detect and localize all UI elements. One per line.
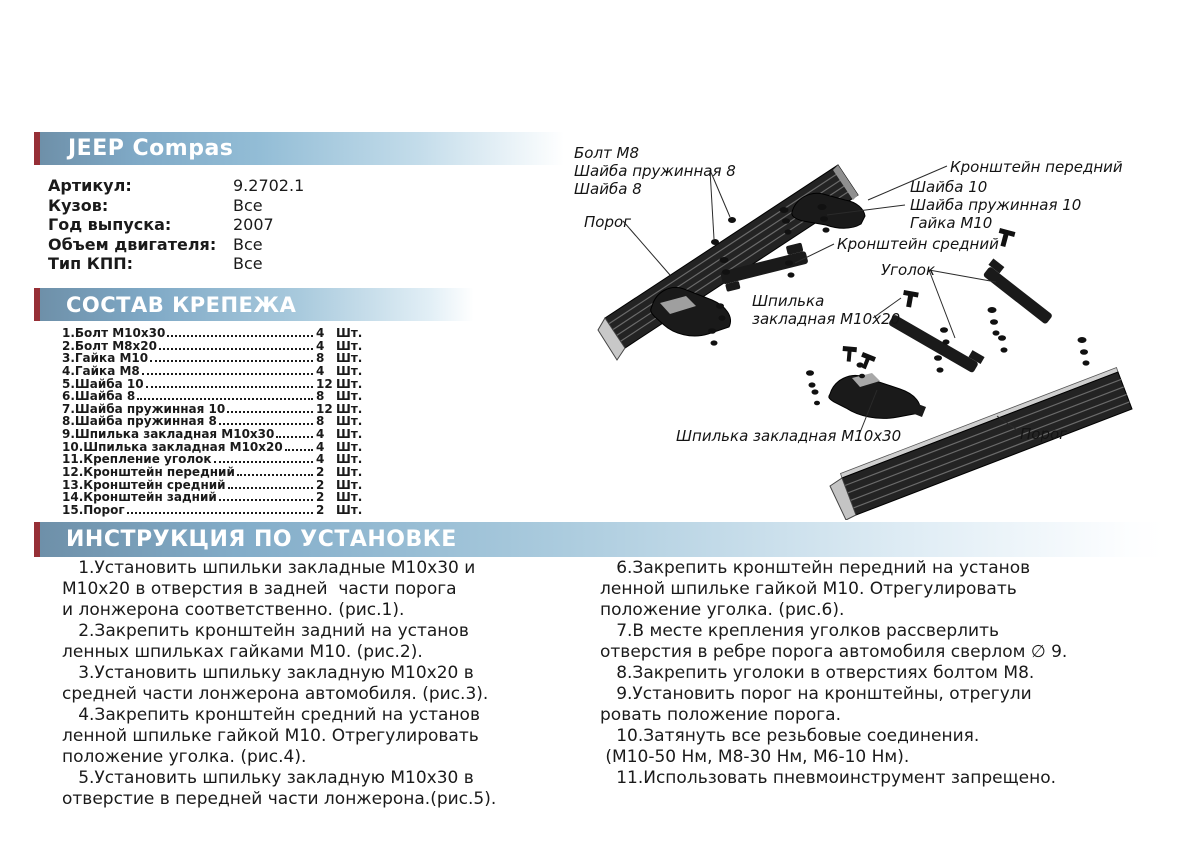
- instructions-header-band: ИНСТРУКЦИЯ ПО УСТАНОВКЕ: [34, 522, 1166, 557]
- dot-leader: [285, 449, 313, 451]
- dot-leader: [219, 423, 313, 425]
- instruction-line: средней части лонжерона автомобиля. (рис…: [62, 684, 572, 705]
- parts-list-row: 10.Шпилька закладная М10х20 4 Шт.: [62, 440, 362, 453]
- dot-leader: [214, 461, 313, 463]
- parts-list-row: 6.Шайба 8 8 Шт.: [62, 389, 362, 402]
- spec-label: Объем двигателя:: [48, 235, 233, 254]
- spec-row: Кузов: Все: [48, 196, 378, 216]
- diagram-label-sill-left: Порог: [584, 213, 631, 231]
- parts-list: 1.Болт М10х30 4 Шт. 2.Болт М8х20 4 Шт. 3…: [62, 326, 362, 516]
- instruction-line: 8.Закрепить уголоки в отверстиях болтом …: [600, 663, 1160, 684]
- parts-list-row: 11.Крепление уголок 4 Шт.: [62, 452, 362, 465]
- part-name: 15.Порог: [62, 503, 125, 517]
- instruction-line: ровать положение порога.: [600, 705, 1160, 726]
- instruction-line: 3.Установить шпильку закладную М10х20 в: [62, 663, 572, 684]
- spec-label: Год выпуска:: [48, 215, 233, 234]
- parts-list-row: 7.Шайба пружинная 10 12 Шт.: [62, 402, 362, 415]
- spec-value: 2007: [233, 215, 274, 234]
- parts-list-row: 2.Болт М8х20 4 Шт.: [62, 339, 362, 352]
- parts-list-row: 3.Гайка М10 8 Шт.: [62, 351, 362, 364]
- spec-table: Артикул: 9.2702.1 Кузов: Все Год выпуска…: [48, 176, 378, 274]
- parts-list-row: 5.Шайба 10 12 Шт.: [62, 377, 362, 390]
- instruction-line: 10.Затянуть все резьбовые соединения.: [600, 726, 1160, 747]
- bracket-rear-shape: [651, 288, 731, 336]
- instruction-line: 1.Установить шпильки закладные М10х30 и: [62, 558, 572, 579]
- spec-row: Год выпуска: 2007: [48, 215, 378, 235]
- instruction-line: положение уголка. (рис.4).: [62, 747, 572, 768]
- dot-leader: [159, 348, 313, 350]
- diagram-label-stud-line1: Шпилька: [752, 292, 824, 310]
- diagram-label-bolt-m8: Болт М8: [574, 144, 639, 162]
- instruction-line: 5.Установить шпильку закладную М10х30 в: [62, 768, 572, 789]
- instruction-sheet: JEEP Compas Артикул: 9.2702.1 Кузов: Все…: [0, 0, 1200, 848]
- dot-leader: [150, 360, 313, 362]
- instruction-line: 6.Закрепить кронштейн передний на устано…: [600, 558, 1160, 579]
- instructions-header: ИНСТРУКЦИЯ ПО УСТАНОВКЕ: [40, 527, 457, 552]
- spec-label: Кузов:: [48, 196, 233, 215]
- diagram-label-stud-line2: закладная М10х20: [752, 310, 900, 328]
- instruction-line: ленных шпильках гайками М10. (рис.2).: [62, 642, 572, 663]
- diagram-label-washer-8: Шайба 8: [574, 180, 642, 198]
- dot-leader: [142, 373, 313, 375]
- dot-leader: [228, 487, 313, 489]
- part-unit: Шт.: [336, 503, 362, 517]
- spec-value: Все: [233, 235, 263, 254]
- instruction-line: М10х20 в отверстия в задней части порога: [62, 579, 572, 600]
- diagram-label-washer-spring-8: Шайба пружинная 8: [574, 162, 736, 180]
- product-title-band: JEEP Compas: [34, 132, 564, 165]
- dot-leader: [146, 386, 313, 388]
- instruction-line: положение уголка. (рис.6).: [600, 600, 1160, 621]
- parts-list-row: 8.Шайба пружинная 8 8 Шт.: [62, 414, 362, 427]
- instructions-header-bg: ИНСТРУКЦИЯ ПО УСТАНОВКЕ: [40, 522, 1166, 557]
- instruction-line: отверстие в передней части лонжерона.(ри…: [62, 789, 572, 810]
- spec-value: Все: [233, 196, 263, 215]
- instruction-line: и лонжерона соответственно. (рис.1).: [62, 600, 572, 621]
- product-title-bg: JEEP Compas: [40, 132, 564, 165]
- parts-header-band: СОСТАВ КРЕПЕЖА: [34, 288, 474, 321]
- parts-list-row: 9.Шпилька закладная М10х30 4 Шт.: [62, 427, 362, 440]
- spec-label: Артикул:: [48, 176, 233, 195]
- instruction-line: 4.Закрепить кронштейн средний на установ: [62, 705, 572, 726]
- diagram-label-corner: Уголок: [881, 261, 935, 279]
- spec-value: 9.2702.1: [233, 176, 304, 195]
- diagram-label-washer-10: Шайба 10: [910, 178, 987, 196]
- product-title: JEEP Compas: [40, 136, 233, 161]
- spec-row: Тип КПП: Все: [48, 254, 378, 274]
- instruction-line: отверстия в ребре порога автомобиля свер…: [600, 642, 1160, 663]
- dot-leader: [237, 474, 313, 476]
- instruction-line: 9.Установить порог на кронштейны, отрегу…: [600, 684, 1160, 705]
- diagram-label-washer-spring-10: Шайба пружинная 10: [910, 196, 1081, 214]
- diagram-label-sill-right: Порог: [1020, 425, 1067, 443]
- parts-list-row: 4.Гайка М8 4 Шт.: [62, 364, 362, 377]
- spec-row: Артикул: 9.2702.1: [48, 176, 378, 196]
- part-quantity: 2: [316, 503, 336, 517]
- diagram-label-bracket-front: Кронштейн передний: [950, 158, 1123, 176]
- instructions-left-column: 1.Установить шпильки закладные М10х30 и …: [62, 558, 572, 810]
- dot-leader: [227, 411, 313, 413]
- assembly-diagram: Болт М8 Шайба пружинная 8 Шайба 8 Порог …: [560, 120, 1180, 520]
- bracket-bottom-shape: [829, 373, 926, 418]
- instruction-line: 7.В месте крепления уголков рассверлить: [600, 621, 1160, 642]
- dot-leader: [276, 436, 313, 438]
- spec-label: Тип КПП:: [48, 254, 233, 273]
- dot-leader: [167, 335, 313, 337]
- diagram-label-stud-m10x30: Шпилька закладная М10х30: [676, 427, 901, 445]
- diagram-label-nut-m10: Гайка М10: [910, 214, 992, 232]
- spec-value: Все: [233, 254, 263, 273]
- parts-list-row: 1.Болт М10х30 4 Шт.: [62, 326, 362, 339]
- parts-list-row: 12.Кронштейн передний 2 Шт.: [62, 465, 362, 478]
- instruction-line: 11.Использовать пневмоинструмент запреще…: [600, 768, 1160, 789]
- parts-header-bg: СОСТАВ КРЕПЕЖА: [40, 288, 474, 321]
- diagram-label-bracket-middle: Кронштейн средний: [837, 235, 999, 253]
- instruction-line: 2.Закрепить кронштейн задний на установ: [62, 621, 572, 642]
- instruction-line: ленной шпильке гайкой М10. Отрегулироват…: [62, 726, 572, 747]
- spec-row: Объем двигателя: Все: [48, 235, 378, 255]
- dot-leader: [219, 499, 313, 501]
- dot-leader: [137, 398, 313, 400]
- instruction-line: (М10-50 Нм, М8-30 Нм, М6-10 Нм).: [600, 747, 1160, 768]
- parts-list-row: 13.Кронштейн средний 2 Шт.: [62, 478, 362, 491]
- instruction-line: ленной шпильке гайкой М10. Отрегулироват…: [600, 579, 1160, 600]
- parts-header: СОСТАВ КРЕПЕЖА: [40, 293, 296, 317]
- dot-leader: [127, 512, 313, 514]
- parts-list-row: 15.Порог 2 Шт.: [62, 503, 362, 516]
- instructions-right-column: 6.Закрепить кронштейн передний на устано…: [600, 558, 1160, 789]
- parts-list-row: 14.Кронштейн задний 2 Шт.: [62, 490, 362, 503]
